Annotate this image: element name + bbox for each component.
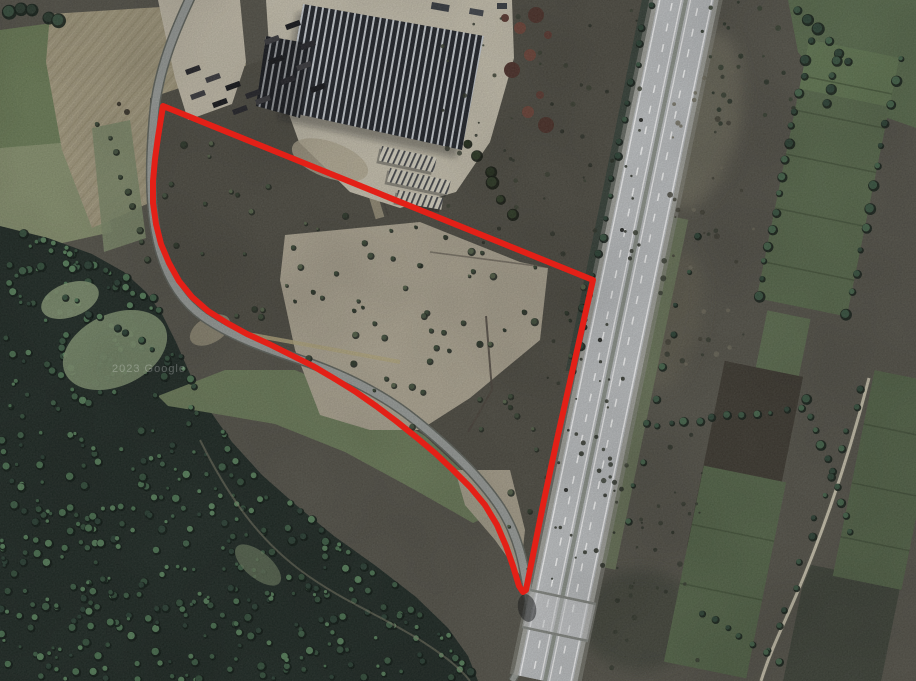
terrain-mottling xyxy=(0,0,916,681)
satellite-map[interactable]: 2023 Google xyxy=(0,0,916,681)
map-watermark: 2023 Google xyxy=(112,363,186,375)
satellite-image: 2023 Google xyxy=(0,0,916,681)
